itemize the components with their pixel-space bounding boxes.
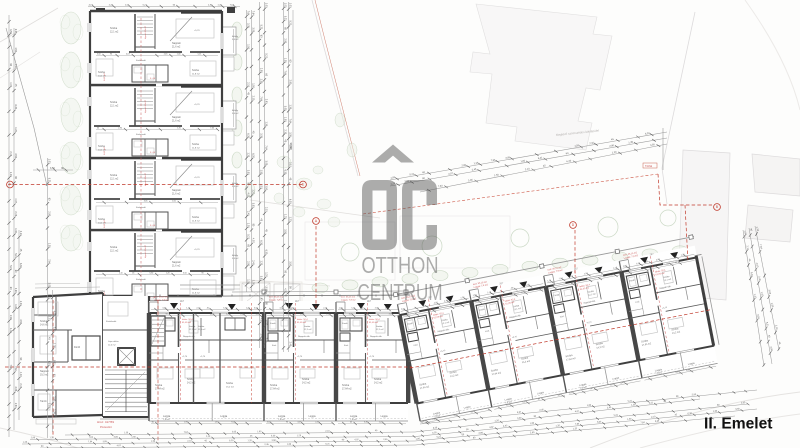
svg-text:Loggia: 7,9 m2: Loggia: 7,9 m2 — [341, 300, 356, 302]
svg-text:Fürdő: Fürdő — [74, 346, 81, 349]
svg-text:1,50: 1,50 — [260, 170, 263, 175]
svg-text:Tároló: Tároló — [40, 400, 47, 403]
svg-text:1,00: 1,00 — [14, 228, 17, 233]
svg-text:Szoba: Szoba — [304, 326, 311, 328]
svg-text:Lépcsőház: Lépcsőház — [108, 341, 119, 343]
svg-text:3,05: 3,05 — [247, 23, 250, 28]
svg-text:11,8 m2: 11,8 m2 — [192, 293, 201, 295]
svg-text:2,45: 2,45 — [19, 383, 22, 388]
svg-text:1,35: 1,35 — [284, 58, 287, 63]
svg-text:1,50: 1,50 — [252, 83, 255, 88]
svg-text:12,1 m2: 12,1 m2 — [304, 329, 312, 331]
svg-text:61,05 m2: 61,05 m2 — [182, 322, 192, 324]
svg-text:Loggia: Loggia — [381, 416, 389, 418]
svg-text:1,20: 1,20 — [260, 261, 263, 266]
svg-text:B: B — [716, 205, 718, 209]
svg-text:3,05: 3,05 — [48, 283, 51, 288]
svg-text:3,50: 3,50 — [19, 319, 22, 324]
svg-text:1,50: 1,50 — [172, 200, 176, 202]
svg-text:5,21: 5,21 — [48, 178, 51, 183]
svg-text:6,30: 6,30 — [14, 105, 17, 110]
svg-text:7,64: 7,64 — [14, 366, 17, 371]
svg-text:Szoba: Szoba — [110, 174, 118, 177]
svg-text:Fürdő: Fürdő — [342, 322, 348, 325]
svg-text:61,05 m2: 61,05 m2 — [297, 322, 307, 324]
svg-text:5,21: 5,21 — [53, 360, 56, 365]
svg-text:2,90: 2,90 — [284, 39, 287, 44]
svg-text:Nappali: Nappali — [172, 42, 181, 45]
svg-text:1,00: 1,00 — [240, 313, 244, 315]
svg-text:12,1 m2: 12,1 m2 — [376, 329, 384, 331]
svg-text:17,64 m2: 17,64 m2 — [155, 389, 165, 391]
svg-text:7,64: 7,64 — [48, 259, 51, 264]
svg-text:2,10: 2,10 — [289, 162, 292, 167]
svg-text:9,4 m2: 9,4 m2 — [232, 186, 239, 188]
svg-text:2,10: 2,10 — [119, 272, 123, 274]
svg-text:2,45: 2,45 — [226, 313, 230, 315]
svg-text:F: 4,6: F: 4,6 — [150, 152, 156, 154]
svg-text:kert: 35,15 m2: kert: 35,15 m2 — [341, 296, 356, 299]
svg-text:1,35: 1,35 — [14, 304, 17, 309]
svg-text:9,4 m2: 9,4 m2 — [232, 258, 239, 260]
svg-text:Szoba: Szoba — [342, 384, 350, 387]
svg-text:1,20: 1,20 — [14, 127, 17, 132]
svg-text:2,90: 2,90 — [53, 396, 56, 401]
svg-text:Nappali: Nappali — [172, 261, 181, 264]
svg-text:Nappali: Nappali — [172, 189, 181, 192]
svg-text:kert: 35,15 m2: kert: 35,15 m2 — [269, 296, 284, 299]
svg-text:45: 45 — [286, 313, 288, 315]
svg-text:Loggia: Loggia — [220, 416, 228, 418]
svg-text:12,1 m2: 12,1 m2 — [110, 251, 119, 253]
svg-text:4,07: 4,07 — [298, 421, 302, 423]
svg-text:6,30: 6,30 — [289, 199, 292, 204]
svg-text:11,8 m2: 11,8 m2 — [192, 148, 201, 150]
svg-text:Erkély: Erkély — [232, 109, 239, 112]
svg-text:2E7: 2E7 — [295, 301, 300, 303]
svg-text:kert: 35,15 m2: kert: 35,15 m2 — [154, 296, 169, 299]
svg-text:6,30: 6,30 — [150, 272, 154, 274]
svg-text:Szoba: Szoba — [189, 326, 196, 328]
svg-text:5,21: 5,21 — [265, 53, 268, 58]
svg-text:2,10: 2,10 — [247, 82, 250, 87]
svg-text:lépcső 16x17: lépcső 16x17 — [145, 172, 147, 186]
svg-text:Nappali: Nappali — [172, 116, 181, 119]
svg-text:4,07: 4,07 — [210, 313, 214, 315]
svg-text:5,21: 5,21 — [284, 16, 287, 21]
svg-text:4,07: 4,07 — [9, 82, 12, 87]
svg-text:6,30: 6,30 — [364, 421, 368, 423]
svg-text:1,20: 1,20 — [166, 272, 170, 274]
svg-text:2E7: 2E7 — [180, 301, 185, 303]
svg-text:2,45: 2,45 — [53, 327, 56, 332]
svg-text:Szoba: Szoba — [192, 69, 199, 72]
svg-text:3,50: 3,50 — [97, 53, 101, 55]
svg-text:2,45: 2,45 — [164, 53, 168, 55]
svg-text:3,05: 3,05 — [144, 200, 148, 202]
svg-text:Szoba: Szoba — [302, 378, 310, 381]
svg-text:1,00: 1,00 — [289, 3, 292, 8]
svg-text:90: 90 — [590, 388, 592, 390]
svg-text:1,20: 1,20 — [284, 214, 287, 219]
svg-text:Szoba: Szoba — [226, 382, 233, 385]
svg-text:5,21: 5,21 — [289, 21, 292, 26]
svg-text:90: 90 — [286, 421, 288, 423]
svg-text:3,50: 3,50 — [14, 153, 17, 158]
svg-text:2,45: 2,45 — [9, 151, 12, 156]
svg-text:14,2 m2: 14,2 m2 — [374, 383, 383, 385]
svg-text:90: 90 — [511, 293, 513, 295]
svg-text:1,35: 1,35 — [9, 328, 12, 333]
svg-text:9,4 m2: 9,4 m2 — [232, 39, 239, 41]
svg-text:2,90: 2,90 — [9, 315, 12, 320]
svg-text:5,21: 5,21 — [9, 265, 12, 270]
svg-text:2,90: 2,90 — [184, 421, 188, 423]
svg-text:1,00: 1,00 — [9, 172, 12, 177]
svg-text:lépcső 16x17: lépcső 16x17 — [145, 244, 147, 258]
svg-text:14,2 m2: 14,2 m2 — [187, 383, 196, 385]
svg-text:II. Emelet: II. Emelet — [704, 416, 772, 433]
svg-text:105,98: 105,98 — [290, 142, 293, 150]
svg-text:Nappali+étk.: Nappali+étk. — [298, 335, 311, 338]
svg-text:6,30: 6,30 — [265, 250, 268, 255]
svg-text:1,35: 1,35 — [53, 409, 56, 414]
svg-text:9,4 m2: 9,4 m2 — [232, 113, 239, 115]
svg-text:1,20: 1,20 — [379, 421, 383, 423]
svg-text:F: F — [9, 183, 11, 187]
svg-text:21,6 m2: 21,6 m2 — [172, 47, 181, 49]
svg-text:1,00: 1,00 — [284, 3, 287, 8]
svg-text:3,50: 3,50 — [289, 261, 292, 266]
svg-text:Szoba: Szoba — [374, 378, 382, 381]
svg-text:1,20: 1,20 — [326, 313, 330, 315]
svg-text:5,21: 5,21 — [256, 313, 260, 315]
svg-text:21,6 m2: 21,6 m2 — [172, 194, 181, 196]
svg-text:1,00: 1,00 — [177, 53, 181, 55]
svg-text:3,05: 3,05 — [252, 28, 255, 33]
svg-text:Loggia: 7,9 m2: Loggia: 7,9 m2 — [154, 300, 169, 302]
svg-text:Szoba: Szoba — [110, 27, 118, 30]
svg-text:7,64: 7,64 — [210, 127, 214, 129]
svg-text:3,50: 3,50 — [50, 167, 55, 170]
svg-text:Loggia: Loggia — [278, 415, 286, 418]
svg-text:Szoba: Szoba — [270, 384, 278, 387]
svg-text:6,30: 6,30 — [19, 263, 22, 268]
svg-text:+5,70: +5,70 — [369, 356, 375, 358]
svg-text:4,07: 4,07 — [126, 53, 130, 55]
svg-text:1,50: 1,50 — [265, 185, 268, 190]
svg-text:Szoba: Szoba — [198, 326, 205, 328]
svg-text:6,30: 6,30 — [48, 361, 51, 366]
svg-text:2,45: 2,45 — [284, 300, 287, 305]
svg-text:Szoba: Szoba — [192, 143, 199, 146]
svg-text:3,05: 3,05 — [14, 29, 17, 34]
svg-text:Erkély: Erkély — [232, 254, 239, 257]
svg-text:6,30: 6,30 — [247, 133, 250, 138]
svg-text:2,10: 2,10 — [252, 96, 255, 101]
svg-text:1,20: 1,20 — [48, 403, 51, 408]
svg-text:4,07: 4,07 — [260, 318, 263, 323]
svg-text:+5,70: +5,70 — [194, 104, 200, 106]
svg-text:+5,70: +5,70 — [194, 249, 200, 251]
svg-text:1,00: 1,00 — [252, 280, 255, 285]
svg-text:Szoba: Szoba — [192, 216, 199, 219]
svg-text:Loggia: Loggia — [163, 415, 171, 418]
svg-text:4,07: 4,07 — [284, 288, 287, 293]
svg-text:90: 90 — [166, 313, 168, 315]
svg-text:2,45: 2,45 — [252, 260, 255, 265]
svg-text:5,21: 5,21 — [198, 53, 202, 55]
svg-text:11,8 m2: 11,8 m2 — [192, 221, 201, 223]
svg-text:Loggia: Loggia — [350, 415, 358, 418]
svg-text:90: 90 — [202, 272, 204, 274]
svg-text:2,90: 2,90 — [265, 99, 268, 104]
svg-text:Szoba: Szoba — [192, 288, 199, 291]
svg-text:1,20: 1,20 — [265, 272, 268, 277]
svg-text:60: 60 — [97, 127, 99, 129]
svg-text:1,00: 1,00 — [265, 3, 268, 8]
svg-text:2,90: 2,90 — [118, 127, 122, 129]
svg-text:lakás: 52,4: lakás: 52,4 — [369, 319, 380, 321]
svg-text:3,50: 3,50 — [267, 421, 271, 423]
svg-text:90: 90 — [110, 53, 112, 55]
svg-text:21,6 m2: 21,6 m2 — [172, 266, 181, 268]
svg-text:2,90: 2,90 — [48, 211, 51, 216]
svg-text:45: 45 — [675, 262, 677, 264]
svg-text:2,10: 2,10 — [284, 130, 287, 135]
svg-text:+5,70: +5,70 — [297, 356, 303, 358]
svg-text:2,90: 2,90 — [289, 80, 292, 85]
svg-text:3,05: 3,05 — [289, 132, 292, 137]
svg-text:2,10: 2,10 — [265, 207, 268, 212]
svg-text:Nappali+étk.: Nappali+étk. — [370, 335, 383, 338]
svg-text:4,07: 4,07 — [265, 320, 268, 325]
svg-text:14,2 m2: 14,2 m2 — [104, 146, 106, 155]
svg-text:+5,70: +5,70 — [194, 177, 200, 179]
svg-text:E: E — [302, 183, 304, 187]
svg-text:3,05: 3,05 — [260, 133, 263, 138]
svg-text:Hrsz: 417/59: Hrsz: 417/59 — [97, 420, 114, 424]
svg-text:4,07: 4,07 — [252, 238, 255, 243]
svg-text:F: 4,6: F: 4,6 — [150, 78, 156, 80]
svg-text:4,07: 4,07 — [247, 193, 250, 198]
svg-text:2,45: 2,45 — [247, 211, 250, 216]
svg-text:7,64: 7,64 — [260, 96, 263, 101]
svg-text:Szoba: Szoba — [110, 246, 118, 249]
svg-text:14,2 m2: 14,2 m2 — [302, 383, 311, 385]
svg-text:11,4 m2: 11,4 m2 — [198, 329, 206, 331]
svg-text:1,20: 1,20 — [247, 153, 250, 158]
svg-text:2,45: 2,45 — [289, 342, 292, 347]
svg-text:15,2 m2: 15,2 m2 — [226, 387, 235, 389]
svg-text:2,90: 2,90 — [247, 261, 250, 266]
svg-text:1,20: 1,20 — [289, 217, 292, 222]
svg-text:2,90: 2,90 — [14, 288, 17, 293]
svg-text:1,00: 1,00 — [247, 223, 250, 228]
svg-text:45: 45 — [132, 272, 134, 274]
svg-text:1,50: 1,50 — [14, 403, 17, 408]
svg-text:2,10: 2,10 — [48, 316, 51, 321]
svg-text:2,45: 2,45 — [14, 211, 17, 216]
svg-text:3,50: 3,50 — [9, 29, 12, 34]
svg-text:1,50: 1,50 — [364, 313, 368, 315]
svg-text:Erkély: Erkély — [232, 35, 239, 38]
svg-text:1,35: 1,35 — [289, 105, 292, 110]
svg-text:OTTHON: OTTHON — [362, 252, 439, 278]
svg-text:2,45: 2,45 — [315, 421, 319, 423]
svg-text:lakás: 52,4: lakás: 52,4 — [297, 319, 308, 321]
svg-text:+5,70: +5,70 — [200, 356, 206, 358]
svg-text:1,50: 1,50 — [48, 294, 51, 299]
svg-text:1,50: 1,50 — [247, 44, 250, 49]
svg-text:3,50: 3,50 — [284, 229, 287, 234]
svg-text:Szoba: Szoba — [110, 101, 118, 104]
svg-text:7,64: 7,64 — [9, 365, 12, 370]
svg-text:Tűzfal: Tűzfal — [645, 164, 652, 168]
svg-text:4,07: 4,07 — [14, 198, 17, 203]
svg-text:17,64 m2: 17,64 m2 — [342, 389, 352, 391]
svg-text:3,05: 3,05 — [265, 161, 268, 166]
svg-text:Loggia: 7,9 m2: Loggia: 7,9 m2 — [269, 300, 284, 302]
svg-text:3,50: 3,50 — [252, 203, 255, 208]
svg-text:3,50: 3,50 — [247, 170, 250, 175]
svg-text:lépcső 16x17: lépcső 16x17 — [145, 25, 147, 39]
svg-text:17,64 m2: 17,64 m2 — [270, 389, 280, 391]
svg-text:+5,70: +5,70 — [182, 356, 188, 358]
svg-text:3,05: 3,05 — [14, 387, 17, 392]
svg-text:7,64: 7,64 — [231, 421, 235, 423]
svg-text:45: 45 — [549, 286, 551, 288]
svg-text:60: 60 — [538, 398, 540, 400]
svg-text:1,35: 1,35 — [215, 421, 219, 423]
svg-text:+5,70: +5,70 — [194, 30, 200, 32]
svg-text:1,20: 1,20 — [252, 189, 255, 194]
svg-text:Közlekedő: Közlekedő — [106, 321, 117, 323]
svg-text:7,64: 7,64 — [289, 119, 292, 124]
svg-text:1,35: 1,35 — [265, 122, 268, 127]
svg-text:1,35: 1,35 — [247, 279, 250, 284]
svg-text:Közl.: Közl. — [344, 345, 349, 347]
svg-text:45: 45 — [350, 421, 352, 423]
svg-text:5,21: 5,21 — [260, 25, 263, 30]
svg-text:7,64: 7,64 — [265, 145, 268, 150]
svg-text:61,05 m2: 61,05 m2 — [369, 322, 379, 324]
svg-text:Pinceszint: Pinceszint — [100, 425, 112, 429]
svg-text:2,45: 2,45 — [260, 334, 263, 339]
svg-text:1,20: 1,20 — [19, 301, 22, 306]
svg-text:7,64: 7,64 — [247, 11, 250, 16]
svg-text:6,30: 6,30 — [284, 170, 287, 175]
svg-text:Szoba: Szoba — [155, 384, 163, 387]
svg-text:2,10: 2,10 — [389, 313, 393, 315]
svg-text:6,30: 6,30 — [252, 153, 255, 158]
svg-text:60: 60 — [152, 421, 154, 423]
svg-text:3,05: 3,05 — [284, 106, 287, 111]
svg-text:Fürdő: Fürdő — [270, 322, 276, 325]
svg-text:6,30: 6,30 — [260, 240, 263, 245]
svg-text:CENTRUM: CENTRUM — [358, 279, 443, 305]
svg-text:2,10: 2,10 — [19, 231, 22, 236]
svg-text:1,35: 1,35 — [260, 79, 263, 84]
svg-text:12,1 m2: 12,1 m2 — [110, 179, 119, 181]
svg-text:21,6 m2: 21,6 m2 — [172, 121, 181, 123]
svg-text:4,07: 4,07 — [289, 305, 292, 310]
svg-text:14,2 m2: 14,2 m2 — [104, 72, 106, 81]
svg-text:1,00: 1,00 — [53, 343, 56, 348]
svg-text:12,1 m2: 12,1 m2 — [110, 32, 119, 34]
svg-text:4,07: 4,07 — [53, 311, 56, 316]
svg-text:14,2 m2: 14,2 m2 — [104, 219, 106, 228]
svg-text:3,50: 3,50 — [265, 287, 268, 292]
svg-text:2,10: 2,10 — [260, 184, 263, 189]
svg-text:F: 4,6: F: 4,6 — [150, 225, 156, 227]
svg-text:lakás: 52,4: lakás: 52,4 — [182, 319, 193, 321]
svg-text:lépcső 16x17: lépcső 16x17 — [145, 99, 147, 113]
svg-text:7,64: 7,64 — [284, 71, 287, 76]
svg-text:1,50: 1,50 — [284, 117, 287, 122]
svg-text:7,9 m2: 7,9 m2 — [163, 419, 170, 421]
svg-text:2,45: 2,45 — [265, 338, 268, 343]
svg-text:60: 60 — [457, 304, 459, 306]
svg-text:4,07: 4,07 — [19, 372, 22, 377]
svg-text:6,30: 6,30 — [300, 313, 304, 315]
svg-text:1,00: 1,00 — [48, 159, 51, 164]
svg-text:12,4 m2: 12,4 m2 — [108, 345, 116, 347]
svg-text:2,90: 2,90 — [260, 68, 263, 73]
svg-text:12,1 m2: 12,1 m2 — [110, 106, 119, 108]
svg-text:5,21: 5,21 — [14, 253, 17, 258]
svg-text:3,50: 3,50 — [183, 272, 187, 274]
svg-text:Közl.: Közl. — [272, 345, 277, 347]
svg-text:11,8 m2: 11,8 m2 — [192, 74, 201, 76]
svg-text:Loggia: Loggia — [309, 416, 317, 418]
svg-text:1,35: 1,35 — [177, 127, 181, 129]
svg-text:3,50: 3,50 — [260, 276, 263, 281]
svg-text:Szoba: Szoba — [376, 326, 383, 328]
svg-text:1,35: 1,35 — [48, 243, 51, 248]
svg-text:5,21: 5,21 — [247, 234, 250, 239]
svg-text:1,50: 1,50 — [14, 47, 17, 52]
svg-text:7,64: 7,64 — [252, 11, 255, 16]
svg-text:3,05: 3,05 — [349, 313, 353, 315]
svg-text:7,9 m2: 7,9 m2 — [278, 419, 285, 421]
